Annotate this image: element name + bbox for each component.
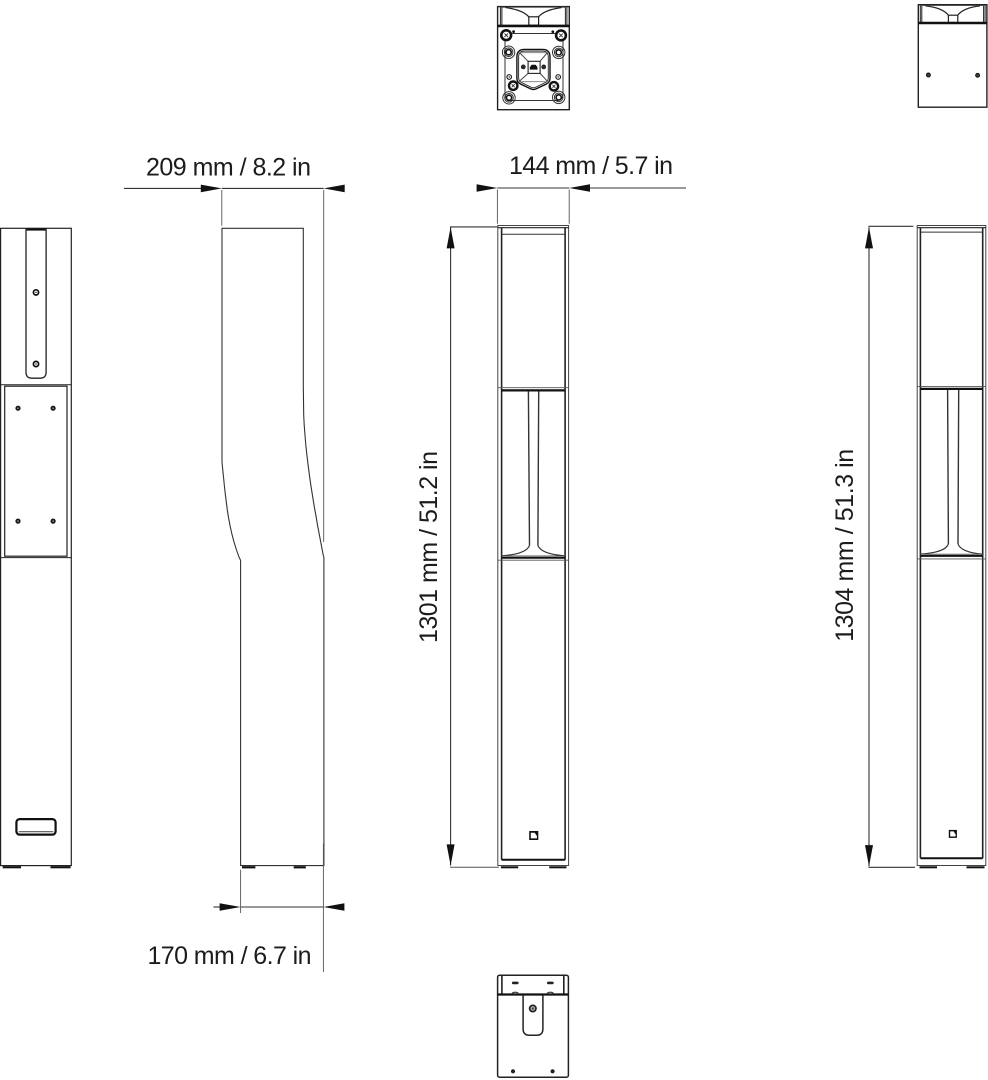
svg-text:144 mm / 5.7 in: 144 mm / 5.7 in [509,152,673,180]
svg-text:170 mm / 6.7 in: 170 mm / 6.7 in [148,942,312,970]
svg-text:209 mm / 8.2 in: 209 mm / 8.2 in [146,153,311,181]
svg-text:1304 mm / 51.3 in: 1304 mm / 51.3 in [831,449,859,642]
svg-text:1301 mm / 51.2 in: 1301 mm / 51.2 in [415,451,443,643]
